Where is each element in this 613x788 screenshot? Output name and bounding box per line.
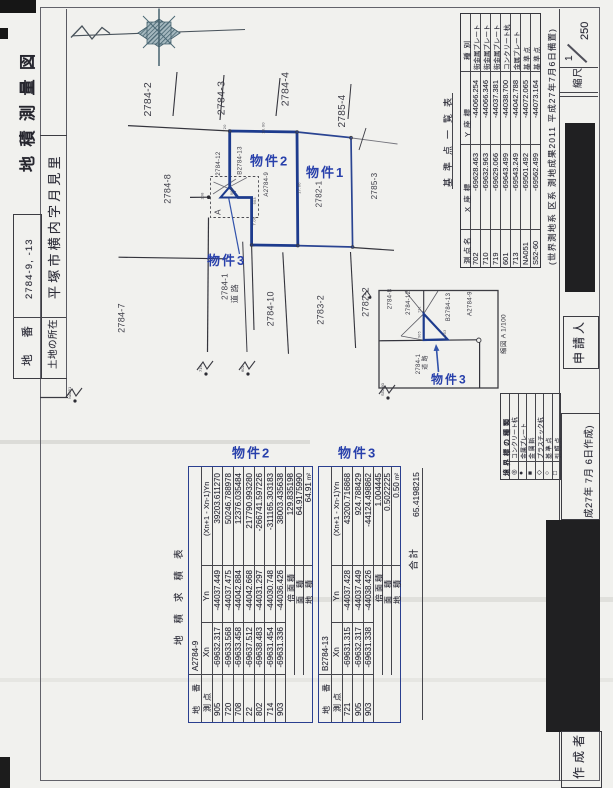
- svg-text:2784-10: 2784-10: [266, 291, 276, 326]
- svg-text:2784-1: 2784-1: [221, 273, 230, 300]
- svg-text:物件2: 物件2: [232, 446, 271, 461]
- svg-text:物件3: 物件3: [338, 446, 377, 461]
- svg-text:A: A: [214, 209, 223, 215]
- svg-text:17.66: 17.66: [297, 182, 302, 194]
- svg-text:物件2: 物件2: [250, 154, 289, 169]
- svg-text:905: 905: [418, 331, 422, 338]
- svg-text:2785-4: 2785-4: [337, 94, 348, 127]
- svg-text:2784-3: 2784-3: [216, 81, 228, 116]
- svg-text:2782-2: 2782-2: [361, 287, 371, 317]
- svg-text:719: 719: [198, 365, 203, 372]
- svg-text:2784-2: 2784-2: [142, 82, 154, 117]
- svg-text:2784-7: 2784-7: [117, 303, 127, 333]
- svg-text:903: 903: [443, 330, 447, 337]
- svg-text:905: 905: [230, 188, 234, 195]
- svg-text:物件1: 物件1: [306, 165, 345, 180]
- svg-text:2784-12: 2784-12: [406, 290, 412, 314]
- svg-text:2784-4: 2784-4: [280, 72, 292, 107]
- svg-text:2784-1: 2784-1: [416, 353, 422, 374]
- svg-text:物件3: 物件3: [431, 372, 468, 387]
- svg-text:2784-8: 2784-8: [163, 174, 173, 204]
- svg-text:2785-3: 2785-3: [370, 172, 379, 199]
- svg-text:2782-1: 2782-1: [315, 180, 324, 207]
- svg-text:A2784-9: A2784-9: [264, 171, 270, 196]
- svg-text:B2784-13: B2784-13: [446, 292, 452, 321]
- svg-text:721: 721: [418, 306, 422, 313]
- svg-text:S52-60: S52-60: [380, 382, 385, 396]
- svg-text:B2784-13: B2784-13: [237, 146, 243, 175]
- svg-text:18.00: 18.00: [261, 122, 266, 134]
- svg-text:物件3: 物件3: [207, 253, 246, 268]
- svg-text:道 路: 道 路: [230, 284, 240, 303]
- svg-text:903: 903: [253, 197, 257, 204]
- svg-text:720: 720: [223, 124, 227, 131]
- svg-text:道 路: 道 路: [421, 355, 429, 370]
- svg-text:2784-12: 2784-12: [216, 151, 222, 175]
- svg-text:2784-8: 2784-8: [388, 288, 394, 309]
- svg-text:7.06: 7.06: [251, 216, 256, 225]
- svg-text:縮図 A 1/100: 縮図 A 1/100: [499, 314, 508, 354]
- svg-text:2783-2: 2783-2: [316, 295, 326, 325]
- svg-text:108: 108: [201, 192, 205, 199]
- svg-text:601: 601: [240, 365, 245, 372]
- svg-text:A2784-9: A2784-9: [468, 291, 474, 316]
